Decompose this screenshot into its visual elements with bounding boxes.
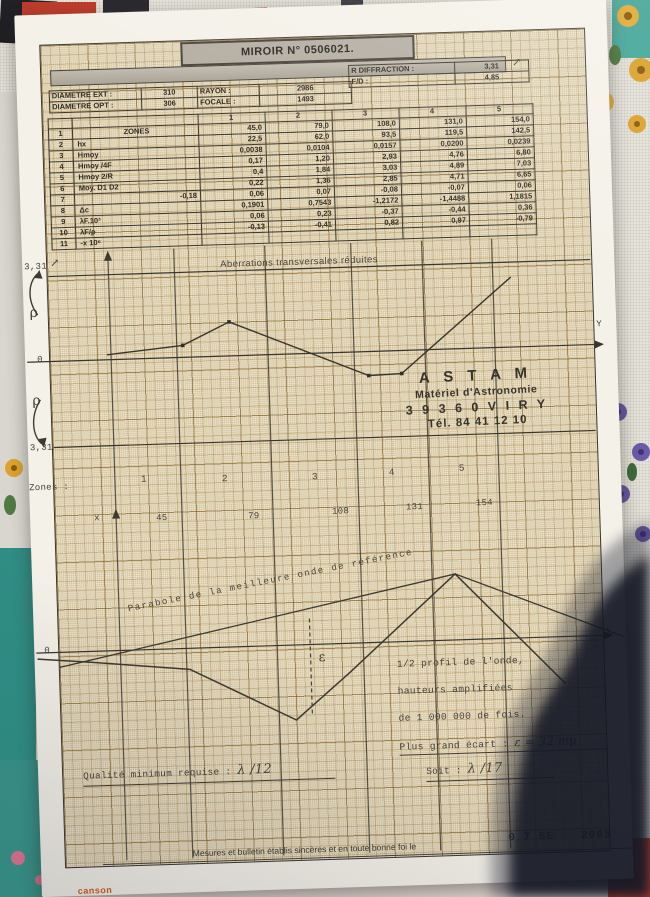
- aberration-data-points: [180, 315, 403, 384]
- zone-radius-154: 154: [476, 498, 493, 509]
- ecart-label: Plus grand écart :: [399, 738, 508, 752]
- soit-value: λ /17: [467, 761, 502, 777]
- canson-logo: canson: [78, 885, 113, 896]
- axis-label-minus-331: 3,31: [30, 443, 53, 454]
- quality-label: Qualité minimum requise :: [83, 766, 231, 782]
- reference-parabola-line: [57, 569, 624, 668]
- zone-radius-131: 131: [406, 502, 423, 513]
- measured-wave-profile-line: [35, 571, 566, 728]
- epsilon-symbol: ε: [318, 650, 325, 665]
- date-stamp-year: 2005: [581, 829, 612, 842]
- y-axis-label-bottom: Y: [606, 626, 612, 637]
- zone-radius-108: 108: [332, 506, 349, 517]
- date-stamp-day: 0 7 SE: [508, 831, 554, 844]
- axis-label-zero-top: 0: [37, 355, 43, 366]
- photo-of-test-report: MIROIR N° 0506021. DIAMETRE EXT :310RAYO…: [0, 0, 650, 897]
- astam-stamp: A S T A M Matériel d'Astronomie 3 9 3 6 …: [383, 363, 570, 433]
- zone-number-5: 5: [459, 464, 465, 475]
- zone-number-2: 2: [222, 474, 228, 485]
- zone-number-1: 1: [141, 475, 147, 486]
- paper-sheet: MIROIR N° 0506021. DIAMETRE EXT :310RAYO…: [14, 0, 633, 897]
- y-axis-right-arrow-icon: [595, 340, 604, 348]
- zone-radius-79: 79: [248, 511, 260, 522]
- axis-label-minus-rho: ρ: [32, 393, 41, 409]
- epsilon-gap-dashed-line: [309, 619, 312, 714]
- zones-strip-label: Zones :: [29, 482, 69, 494]
- data-point-marker: [181, 344, 185, 348]
- y-axis-label-top: Y: [596, 319, 602, 330]
- data-point-marker: [227, 320, 231, 324]
- ecart-value: ε = 32 mμ: [514, 733, 577, 749]
- soit-label: Soit :: [426, 765, 462, 777]
- axis-label-plus-rho: ρ: [29, 305, 38, 321]
- zone-number-3: 3: [312, 472, 318, 483]
- axis-label-zero-bottom: 0: [44, 646, 50, 657]
- quality-value: λ /12: [237, 762, 272, 778]
- zone-radius-45: 45: [156, 513, 168, 524]
- pen-arrow-icon: ↗: [50, 256, 60, 269]
- zone-number-4: 4: [389, 468, 395, 479]
- axis-label-plus-331: 3,31: [24, 262, 47, 273]
- x-axis-label: x: [94, 513, 100, 524]
- data-point-marker: [367, 374, 371, 378]
